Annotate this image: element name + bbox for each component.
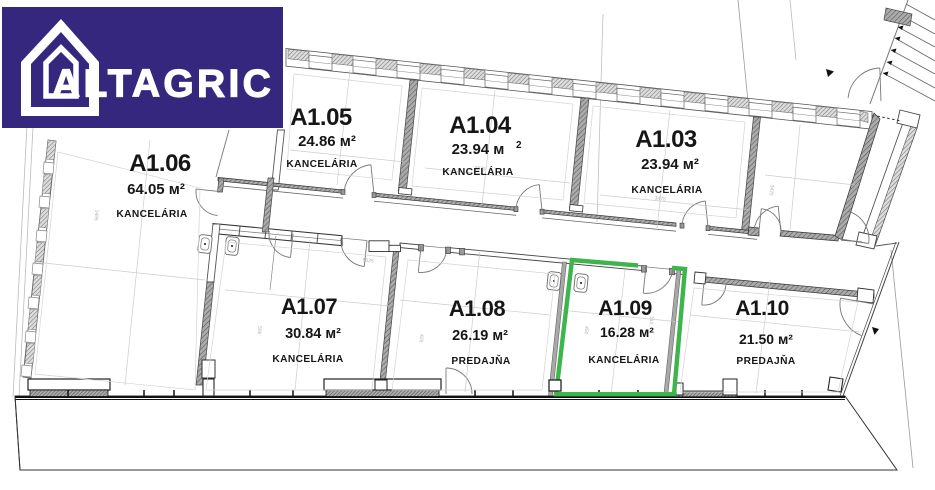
svg-text:1495: 1495 [92, 209, 99, 221]
svg-text:PREDAJŇA: PREDAJŇA [451, 354, 510, 367]
svg-text:505: 505 [256, 326, 263, 335]
svg-text:21.50 м²: 21.50 м² [739, 331, 793, 347]
svg-text:A1.03: A1.03 [635, 126, 697, 153]
svg-text:KANCELÁRIA: KANCELÁRIA [116, 207, 188, 220]
svg-text:30.84 м²: 30.84 м² [285, 326, 341, 342]
svg-text:450: 450 [583, 326, 590, 335]
svg-text:A1.05: A1.05 [290, 104, 352, 131]
svg-text:2: 2 [516, 140, 522, 151]
svg-text:23.94 м²: 23.94 м² [641, 156, 699, 173]
svg-text:KANCELÁRIA: KANCELÁRIA [272, 352, 344, 365]
svg-text:3475: 3475 [767, 184, 774, 196]
svg-text:KANCELÁRIA: KANCELÁRIA [442, 165, 514, 178]
svg-text:425: 425 [418, 334, 425, 343]
svg-text:3475: 3475 [654, 195, 666, 202]
svg-text:64.05 м²: 64.05 м² [127, 181, 185, 198]
svg-text:KANCELÁRIA: KANCELÁRIA [588, 353, 660, 366]
svg-text:23.94 м: 23.94 м [452, 141, 505, 158]
svg-text:A1.10: A1.10 [735, 297, 789, 320]
svg-text:ALTAGRIC: ALTAGRIC [52, 63, 274, 106]
svg-text:24.86 м²: 24.86 м² [298, 133, 356, 150]
svg-text:A1.07: A1.07 [281, 294, 337, 319]
svg-text:KANCELÁRIA: KANCELÁRIA [286, 157, 358, 170]
svg-text:A1.09: A1.09 [598, 297, 652, 320]
svg-text:26.19 м²: 26.19 м² [452, 328, 508, 344]
svg-text:A1.06: A1.06 [129, 150, 191, 177]
svg-text:A1.04: A1.04 [449, 112, 512, 139]
svg-text:PREDAJŇA: PREDAJŇA [736, 354, 795, 367]
svg-text:5025: 5025 [362, 257, 374, 264]
svg-text:16.28 м²: 16.28 м² [600, 324, 654, 340]
svg-text:KANCELÁRIA: KANCELÁRIA [631, 183, 703, 196]
svg-text:A1.08: A1.08 [449, 296, 505, 321]
